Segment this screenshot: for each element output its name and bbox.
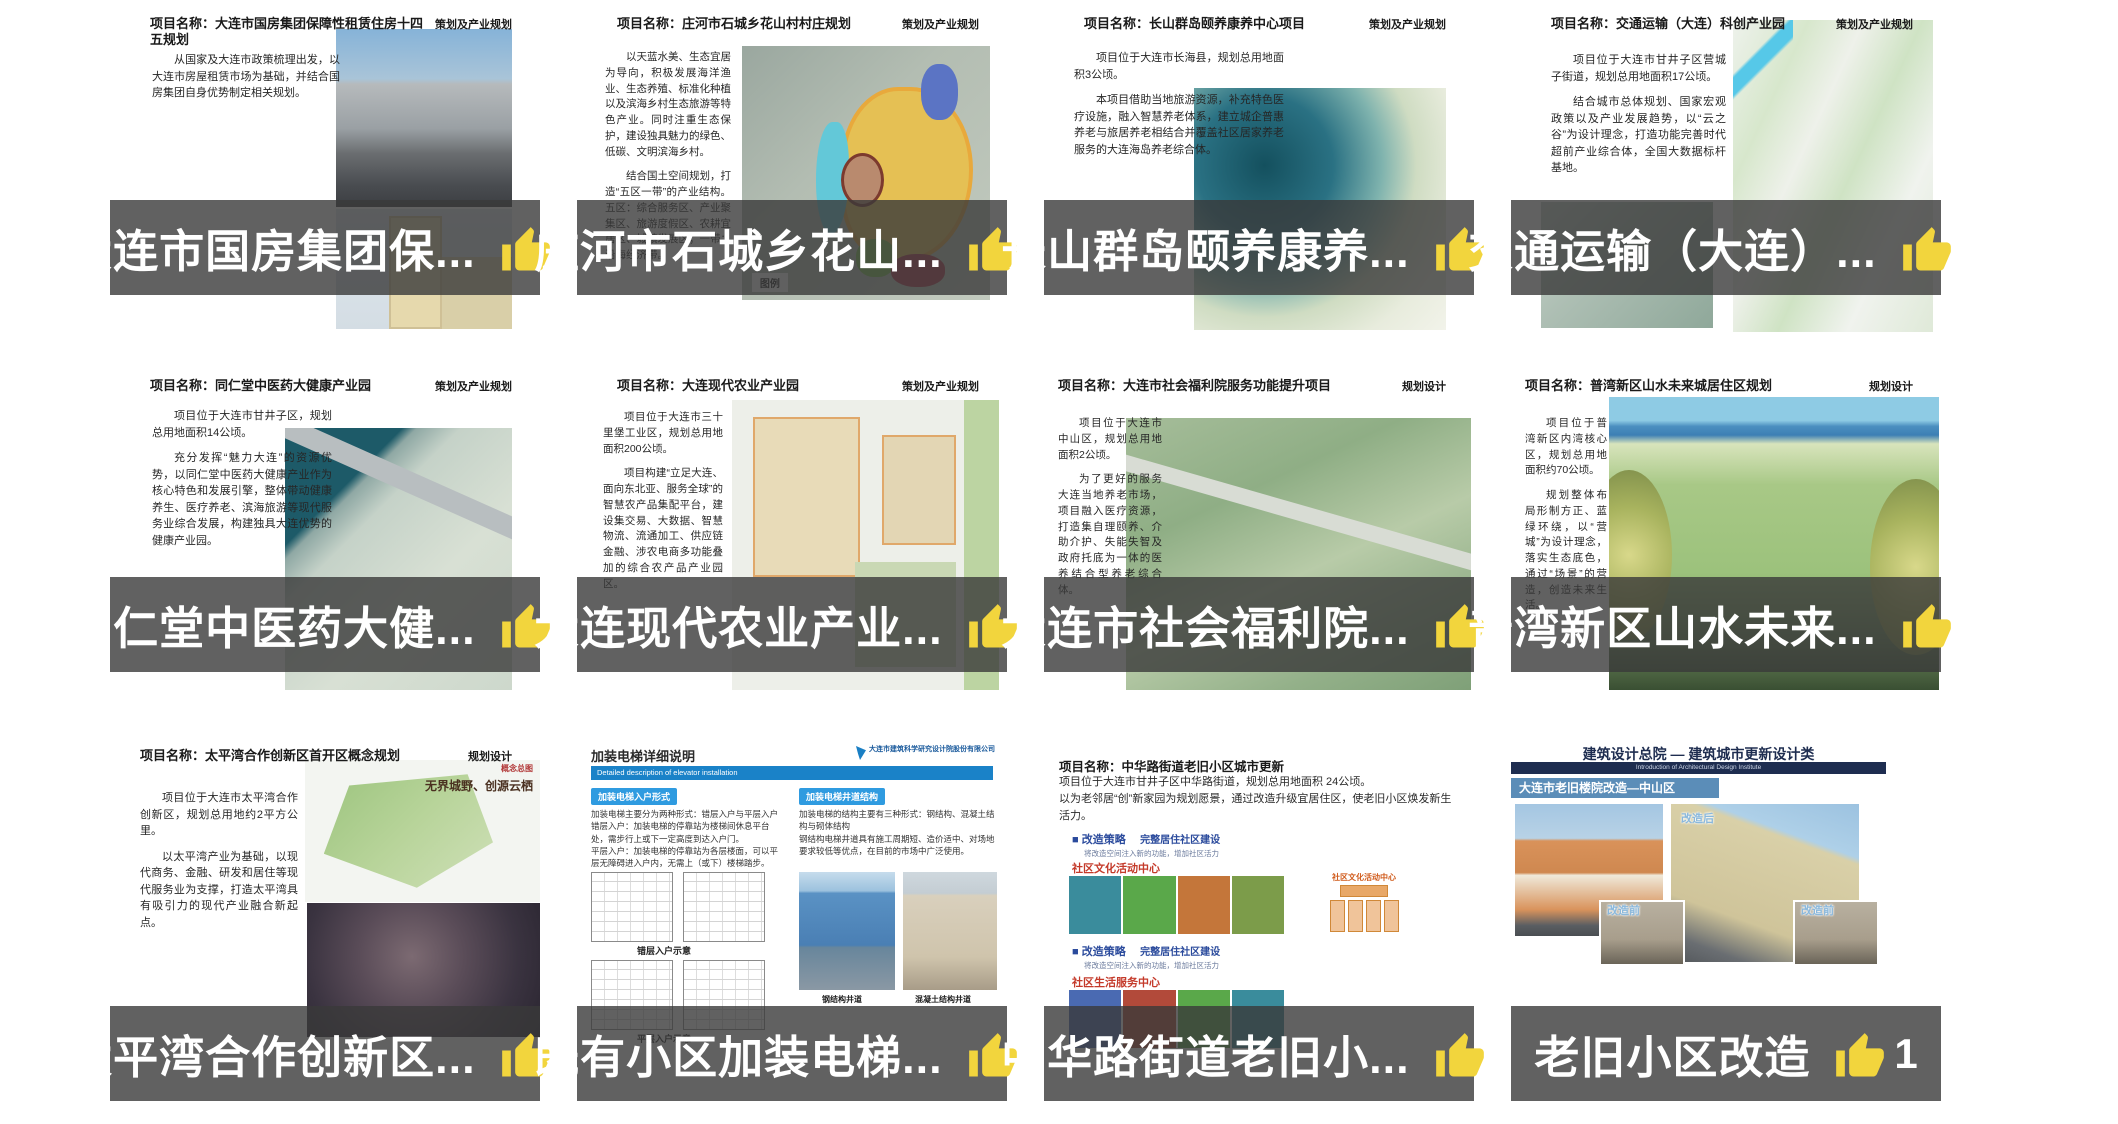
slide-header: 项目名称：大连现代农业产业园 策划及产业规划 <box>617 378 979 394</box>
project-card[interactable]: 项目名称：同仁堂中医药大健康产业园 策划及产业规划 项目位于大连市甘井子区，规划… <box>110 372 540 690</box>
thumbs-up-icon[interactable] <box>1901 225 1953 277</box>
section-text: 加装电梯主要分为两种形式：错层入户与平层入户 错层入户：加装电梯的停靠站为楼梯间… <box>591 808 781 870</box>
project-banner[interactable]: 交通运输（大连）... 3 <box>1511 200 1941 295</box>
company-name: 大连市建筑科学研究设计院股份有限公司 <box>869 746 995 754</box>
project-description: 从国家及大连市政策梳理出发，以大连市房屋租赁市场为基础，并结合国房集团自身优势制… <box>152 52 340 111</box>
category-label: 规划设计 <box>468 748 512 764</box>
category-label: 策划及产业规划 <box>435 378 512 394</box>
slide-header: 项目名称：交通运输（大连）科创产业园 策划及产业规划 <box>1551 16 1913 32</box>
org-chart-title: 社区文化活动中心 <box>1299 872 1429 883</box>
thumbs-up-icon[interactable] <box>1834 1031 1886 1083</box>
project-description: 项目位于大连市三十里堡工业区，规划总用地面积200公顷。 项目构建“立足大连、面… <box>603 410 723 601</box>
drawing-caption: 错层入户示意 <box>637 944 691 957</box>
slide-header: 项目名称：普湾新区山水未来城居住区规划 规划设计 <box>1525 378 1913 394</box>
collage-photo <box>1232 876 1284 934</box>
street-photo-placeholder <box>336 29 512 207</box>
category-label: 策划及产业规划 <box>902 378 979 394</box>
collage-photo <box>1123 876 1175 934</box>
banner-title: 长山群岛颐养康养... <box>1001 215 1410 280</box>
strategy-section: ■ 改造策略 完整居住社区建设 将改造空间注入新的功能，增加社区活力 <box>1072 830 1220 859</box>
like-count: 1 <box>1894 1030 1917 1078</box>
org-chart-row <box>1299 900 1429 932</box>
like-count: 3 <box>1961 224 1984 272</box>
banner-title: 同仁堂中医药大健... <box>67 592 476 657</box>
slide-header: 项目名称：太平湾合作创新区首开区概念规划 规划设计 <box>140 748 512 764</box>
english-subtitle-bar: Detailed description of elevator install… <box>591 766 993 780</box>
thumbs-up-icon[interactable] <box>1901 602 1953 654</box>
project-banner[interactable]: 大连现代农业产业... 3 <box>577 577 1007 672</box>
collage-photo <box>1069 876 1121 934</box>
banner-title: 老旧小区改造 <box>1534 1021 1810 1086</box>
concept-map-placeholder: 概念总图 无界城野、创源云栖 <box>305 760 540 902</box>
after-label: 改造后 <box>1681 810 1714 826</box>
project-description: 项目位于大连市甘井子区，规划总用地面积14公顷。 充分发挥“魅力大连”的资源优势… <box>152 408 332 558</box>
project-banner[interactable]: 普湾新区山水未来... 1 <box>1511 577 1941 672</box>
floorplan-drawing-placeholder <box>591 872 673 942</box>
project-banner[interactable]: 老旧小区改造 1 <box>1511 1006 1941 1101</box>
gallery-row-2: 项目名称：同仁堂中医药大健康产业园 策划及产业规划 项目位于大连市甘井子区，规划… <box>0 372 2118 690</box>
project-card[interactable]: 项目名称：庄河市石城乡花山村村庄规划 策划及产业规划 以天蓝水美、生态宜居为导向… <box>577 10 1007 332</box>
banner-title: 庄河市石城乡花山... <box>534 215 943 280</box>
section-chip: 加装电梯入户形式 <box>591 788 677 805</box>
project-banner[interactable]: 大连市国房集团保... 9 <box>110 200 540 295</box>
project-banner[interactable]: 中华路街道老旧小... 2 <box>1044 1006 1474 1101</box>
project-card[interactable]: 加装电梯详细说明 大连市建筑科学研究设计院股份有限公司 Detailed des… <box>577 742 1007 1114</box>
concept-slogan: 无界城野、创源云栖 <box>425 777 533 794</box>
category-label: 策划及产业规划 <box>435 16 512 32</box>
slide-heading: 加装电梯详细说明 <box>591 746 695 765</box>
banner-title: 交通运输（大连）... <box>1468 215 1877 280</box>
org-chart-box <box>1348 900 1363 932</box>
before-label: 改造前 <box>1607 902 1640 918</box>
gallery-row-3: 项目名称：太平湾合作创新区首开区概念规划 规划设计 项目位于大连市太平湾合作创新… <box>0 742 2118 1114</box>
section-chip: 加装电梯井道结构 <box>799 788 885 805</box>
category-label: 规划设计 <box>1402 378 1446 394</box>
org-chart-box <box>1340 885 1388 897</box>
project-description: 项目位于大连市甘井子区营城子街道，规划总用地面积17公顷。 结合城市总体规划、国… <box>1551 52 1726 186</box>
project-title: 项目名称：交通运输（大连）科创产业园 <box>1551 16 1785 32</box>
slide-header: 项目名称：长山群岛颐养康养中心项目 策划及产业规划 <box>1084 16 1446 32</box>
category-label: 策划及产业规划 <box>1369 16 1446 32</box>
project-card[interactable]: 项目名称：大连市社会福利院服务功能提升项目 规划设计 项目位于大连市中山区，规划… <box>1044 372 1474 690</box>
project-banner[interactable]: 大连市社会福利院... 2 <box>1044 577 1474 672</box>
project-description: 项目位于大连市太平湾合作创新区，规划总用地约2平方公里。 以太平湾产业为基础，以… <box>140 790 298 940</box>
category-label: 策划及产业规划 <box>1836 16 1913 32</box>
community-culture-label: 社区文化活动中心 <box>1072 860 1160 876</box>
project-title: 项目名称：庄河市石城乡花山村村庄规划 <box>617 16 851 32</box>
project-title: 项目名称：同仁堂中医药大健康产业园 <box>150 378 371 394</box>
project-title: 项目名称：大连市国房集团保障性租赁住房十四五规划 <box>150 16 425 49</box>
plan-block <box>882 435 957 545</box>
category-label: 策划及产业规划 <box>902 16 979 32</box>
project-banner[interactable]: 既有小区加装电梯... 3 <box>577 1006 1007 1101</box>
banner-title: 大连市国房集团保... <box>67 215 476 280</box>
project-banner[interactable]: 庄河市石城乡花山... 2 <box>577 200 1007 295</box>
company-logo-icon <box>856 746 866 760</box>
project-banner[interactable]: 长山群岛颐养康养... 4 <box>1044 200 1474 295</box>
section-text: 加装电梯的结构主要有三种形式：钢结构、混凝土结构与砌体结构 钢结构电梯井道具有施… <box>799 808 995 857</box>
org-chart: 社区文化活动中心 <box>1299 872 1429 932</box>
project-description: 项目位于大连市长海县，规划总用地面积3公顷。 本项目借助当地旅游资源，补充特色医… <box>1074 50 1284 167</box>
slide-header: 项目名称：同仁堂中医药大健康产业园 策划及产业规划 <box>150 378 512 394</box>
map-zone <box>921 64 958 120</box>
slide-header: 项目名称：大连市国房集团保障性租赁住房十四五规划 策划及产业规划 <box>150 16 512 49</box>
project-title: 项目名称：普湾新区山水未来城居住区规划 <box>1525 378 1772 394</box>
institute-header: 建筑设计总院 — 建筑城市更新设计类 <box>1511 744 1886 764</box>
project-banner[interactable]: 太平湾合作创新区... 2 <box>110 1006 540 1101</box>
project-title: 项目名称：大连市社会福利院服务功能提升项目 <box>1058 378 1331 394</box>
road-shape <box>1126 447 1471 591</box>
project-card[interactable]: 项目名称：长山群岛颐养康养中心项目 策划及产业规划 项目位于大连市长海县，规划总… <box>1044 10 1474 332</box>
project-card[interactable]: 项目名称：交通运输（大连）科创产业园 策划及产业规划 项目位于大连市甘井子区营城… <box>1511 10 1941 332</box>
institute-header-en: Introduction of Architectural Design Ins… <box>1511 762 1886 774</box>
project-card[interactable]: 项目名称：太平湾合作创新区首开区概念规划 规划设计 项目位于大连市太平湾合作创新… <box>110 742 540 1114</box>
company-logo: 大连市建筑科学研究设计院股份有限公司 <box>856 746 995 760</box>
like-count: 1 <box>1961 601 1984 649</box>
project-card[interactable]: 项目名称：普湾新区山水未来城居住区规划 规划设计 项目位于普湾新区内湾核心区，规… <box>1511 372 1941 690</box>
org-chart-box <box>1384 900 1399 932</box>
org-chart-box <box>1330 900 1345 932</box>
map-tag: 概念总图 <box>501 763 533 774</box>
photo-caption: 混凝土结构井道 <box>915 994 971 1005</box>
project-card[interactable]: 建筑设计总院 — 建筑城市更新设计类 Introduction of Archi… <box>1511 742 1941 1114</box>
community-life-label: 社区生活服务中心 <box>1072 974 1160 990</box>
section-drawing-placeholder <box>683 872 765 942</box>
org-chart-box <box>1366 900 1381 932</box>
collage-photo <box>1178 876 1230 934</box>
project-title: 项目名称：长山群岛颐养康养中心项目 <box>1084 16 1305 32</box>
photo-collage-placeholder <box>1069 876 1284 934</box>
thumbs-up-icon[interactable] <box>1434 1031 1486 1083</box>
banner-title: 太平湾合作创新区... <box>67 1021 476 1086</box>
project-title: 项目名称：中华路街道老旧小区城市更新 <box>1059 756 1284 775</box>
steel-shaft-photo-placeholder <box>799 872 895 990</box>
gallery-row-1: 项目名称：大连市国房集团保障性租赁住房十四五规划 策划及产业规划 从国家及大连市… <box>0 10 2118 332</box>
banner-title: 大连市社会福利院... <box>1001 592 1410 657</box>
concrete-shaft-photo-placeholder <box>903 872 997 990</box>
banner-title: 大连现代农业产业... <box>534 592 943 657</box>
project-card[interactable]: 项目名称：大连市国房集团保障性租赁住房十四五规划 策划及产业规划 从国家及大连市… <box>110 10 540 332</box>
banner-title: 普湾新区山水未来... <box>1468 592 1877 657</box>
project-card[interactable]: 项目名称：中华路街道老旧小区城市更新 项目位于大连市甘井子区中华路街道，规划总用… <box>1044 742 1474 1114</box>
strategy-section: ■ 改造策略 完整居住社区建设 将改造空间注入新的功能，增加社区活力 <box>1072 942 1220 971</box>
project-bar: 大连市老旧楼院改造—中山区 <box>1511 778 1719 798</box>
slide-header: 项目名称：庄河市石城乡花山村村庄规划 策划及产业规划 <box>617 16 979 32</box>
category-label: 规划设计 <box>1869 378 1913 394</box>
map-zone <box>841 153 884 207</box>
plan-block <box>753 417 860 577</box>
project-banner[interactable]: 同仁堂中医药大健... 6 <box>110 577 540 672</box>
river-shape <box>1733 20 1793 142</box>
project-card[interactable]: 项目名称：大连现代农业产业园 策划及产业规划 项目位于大连市三十里堡工业区，规划… <box>577 372 1007 690</box>
project-title: 项目名称：大连现代农业产业园 <box>617 378 799 394</box>
project-title: 项目名称：太平湾合作创新区首开区概念规划 <box>140 748 400 764</box>
banner-title: 既有小区加装电梯... <box>534 1021 943 1086</box>
banner-title: 中华路街道老旧小... <box>1001 1021 1410 1086</box>
slide-header: 项目名称：大连市社会福利院服务功能提升项目 规划设计 <box>1058 378 1446 394</box>
before-label: 改造前 <box>1801 902 1834 918</box>
photo-caption: 钢结构井道 <box>822 994 862 1005</box>
project-description: 项目位于大连市甘井子区中华路街道，规划总用地面积 24公顷。 以为老邻居“创”新… <box>1059 774 1459 825</box>
